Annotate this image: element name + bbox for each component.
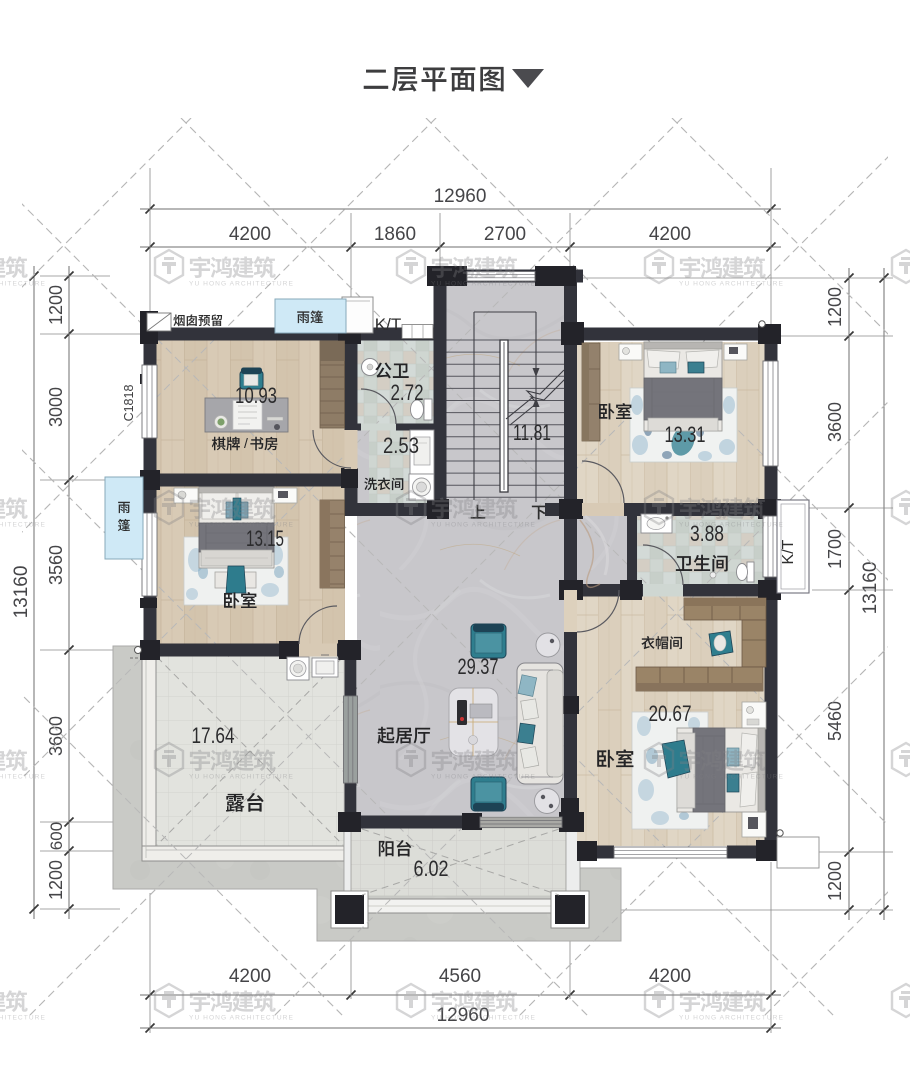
svg-text:K/T: K/T bbox=[780, 539, 797, 564]
svg-text:1860: 1860 bbox=[374, 224, 416, 245]
svg-text:1200: 1200 bbox=[46, 860, 66, 900]
svg-text:1700: 1700 bbox=[825, 529, 845, 569]
svg-text:17.64: 17.64 bbox=[192, 723, 235, 748]
svg-text:4200: 4200 bbox=[229, 966, 271, 987]
svg-text:4200: 4200 bbox=[649, 224, 691, 245]
svg-text:29.37: 29.37 bbox=[458, 654, 499, 679]
svg-text:3000: 3000 bbox=[46, 387, 66, 427]
svg-text:4200: 4200 bbox=[229, 224, 271, 245]
svg-text:4560: 4560 bbox=[439, 966, 481, 987]
svg-text:1200: 1200 bbox=[825, 287, 845, 327]
svg-text:2700: 2700 bbox=[484, 224, 526, 245]
svg-text:3560: 3560 bbox=[46, 545, 66, 585]
svg-text:10.93: 10.93 bbox=[235, 383, 277, 408]
svg-text:2.53: 2.53 bbox=[383, 433, 419, 458]
svg-text:/: / bbox=[244, 435, 248, 451]
svg-text:6.02: 6.02 bbox=[414, 856, 449, 881]
svg-text:11.81: 11.81 bbox=[513, 420, 551, 445]
svg-text:2.72: 2.72 bbox=[391, 380, 424, 405]
svg-text:C1818: C1818 bbox=[122, 385, 136, 422]
svg-text:20.67: 20.67 bbox=[649, 701, 692, 726]
svg-text:600: 600 bbox=[47, 822, 66, 850]
svg-text:3600: 3600 bbox=[825, 402, 845, 442]
svg-text:13.31: 13.31 bbox=[665, 422, 706, 447]
svg-text:13160: 13160 bbox=[11, 566, 32, 619]
svg-text:13.15: 13.15 bbox=[246, 526, 284, 551]
svg-text:K/T: K/T bbox=[375, 315, 401, 334]
svg-text:1200: 1200 bbox=[825, 861, 845, 901]
svg-text:1200: 1200 bbox=[46, 285, 66, 325]
svg-text:12960: 12960 bbox=[434, 186, 487, 207]
svg-text:4200: 4200 bbox=[649, 966, 691, 987]
